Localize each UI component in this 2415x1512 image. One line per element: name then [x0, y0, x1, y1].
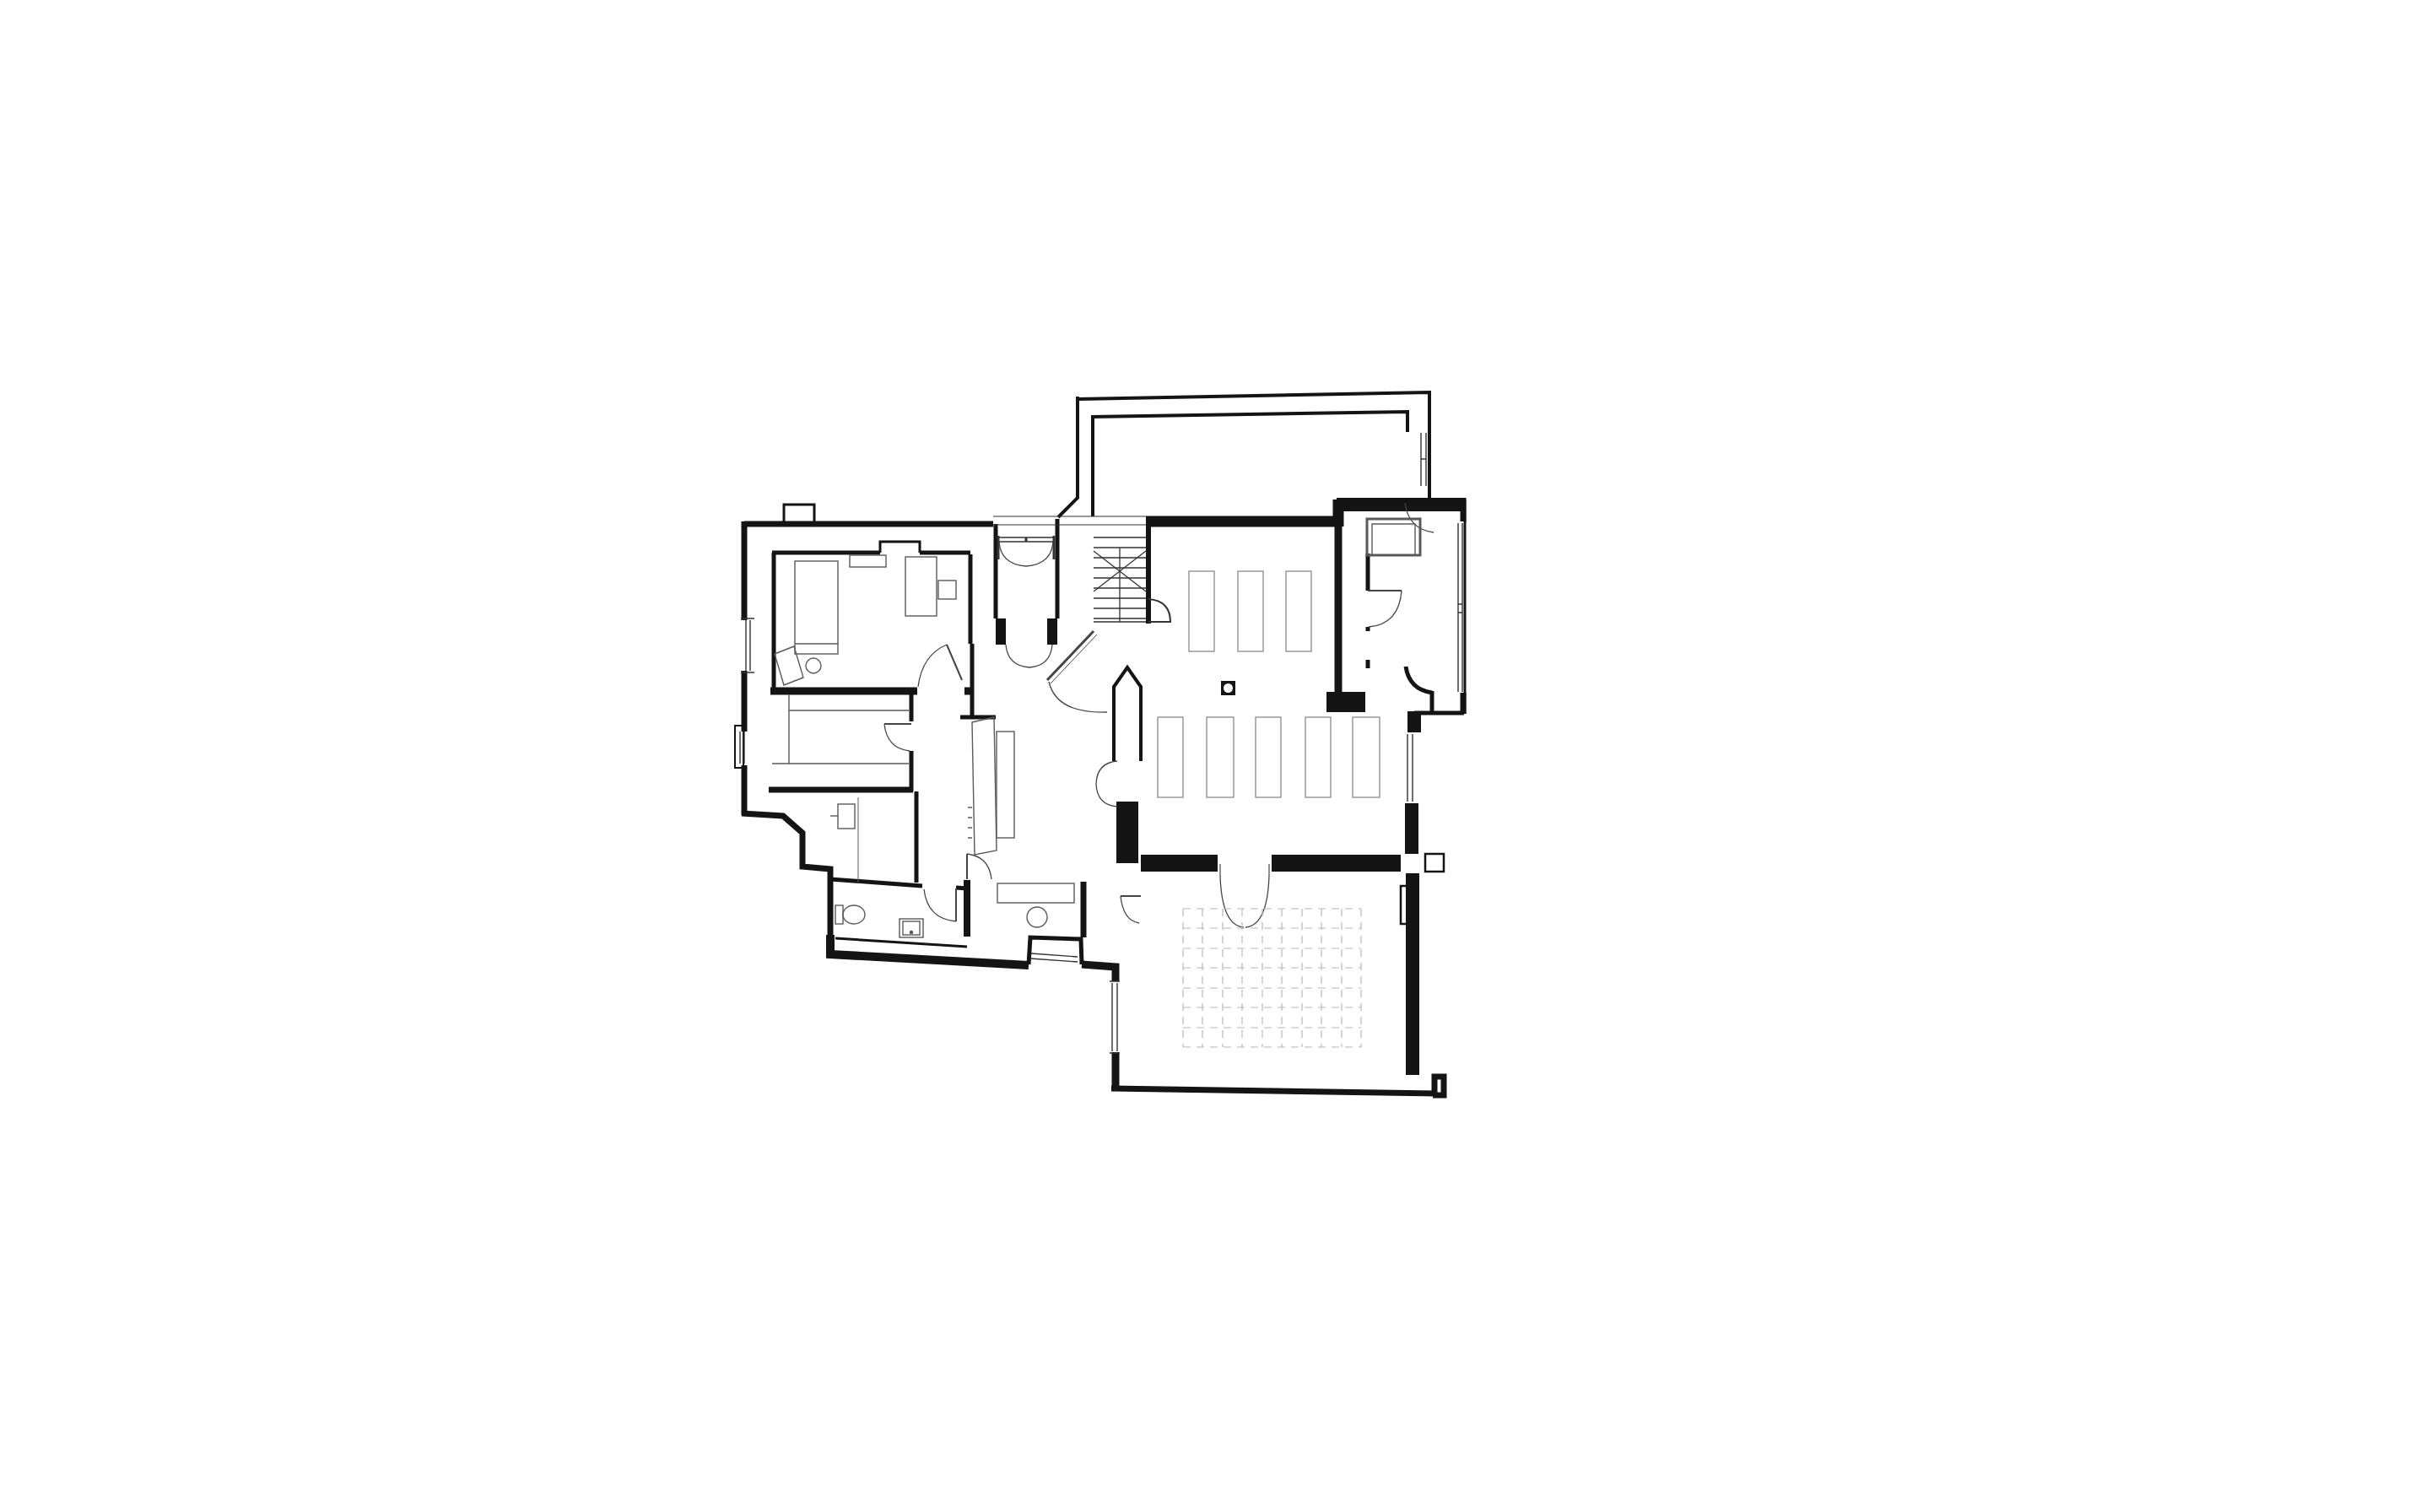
lower-desk-1 — [1158, 717, 1183, 797]
walls-exterior — [735, 392, 1465, 1095]
desk-chair — [938, 580, 956, 599]
bedroom-door-arc — [918, 645, 947, 687]
east-pilaster — [1425, 854, 1444, 872]
window-hall-west — [1110, 981, 1120, 1053]
wc-door-arc — [967, 854, 991, 879]
wc-counter — [997, 883, 1074, 903]
annex-door-arc — [1369, 591, 1402, 627]
rug — [775, 646, 803, 685]
terrace-outer-wall — [1078, 392, 1429, 499]
french-door-arcs — [999, 542, 1053, 566]
bath-door-arc — [924, 889, 956, 921]
vestibule-walls — [970, 519, 1057, 715]
hall-double-door-arcs — [1220, 876, 1269, 927]
coat-hooks — [968, 807, 972, 838]
bed — [795, 561, 838, 654]
wc-sink — [1027, 907, 1047, 927]
lower-desk-4 — [1305, 717, 1331, 797]
toilet-tank — [835, 905, 843, 924]
shower-drain — [910, 931, 912, 933]
stool — [806, 658, 821, 673]
southwest-corner — [742, 813, 830, 937]
window-classroom-east — [1407, 734, 1413, 802]
toilet-bowl — [843, 905, 865, 924]
diagonal-door-arc — [1049, 682, 1107, 712]
hall-double-door-jambs — [1220, 864, 1269, 876]
classroom-north-wall — [1146, 499, 1342, 526]
bedroom2-door-arc — [884, 724, 910, 751]
window-annex-east — [1458, 523, 1462, 692]
bath-north-wall — [830, 879, 967, 888]
floor-plan-canvas — [0, 0, 2415, 1512]
bed-platform-lines — [772, 694, 909, 764]
terrace-west-wall — [1058, 397, 1093, 517]
vestibule-jambs — [1001, 618, 1052, 645]
canopy-edge-lines — [993, 516, 1146, 525]
desks — [1158, 571, 1380, 797]
column — [1221, 681, 1235, 695]
wardrobe-back — [997, 732, 1014, 838]
vestibule-frame-posts — [998, 536, 1054, 559]
hall-west-wall — [1082, 964, 1116, 1090]
annex-closet-inner — [1372, 524, 1415, 555]
terrace-inner-wall — [1091, 412, 1407, 432]
cabinet — [838, 804, 855, 829]
lower-desk-3 — [1256, 717, 1281, 797]
hall-left-door-arc — [1121, 896, 1139, 923]
desk — [905, 557, 937, 616]
grid-vertical-lines — [1183, 909, 1361, 1047]
upper-desk-3 — [1286, 571, 1311, 651]
window-west-upper — [741, 618, 754, 672]
grid-horizontal-lines — [1183, 909, 1361, 1047]
bedroom-north-notch — [880, 542, 920, 553]
upper-desk-1 — [1189, 571, 1214, 651]
vestibule-double-door-arcs — [1006, 645, 1052, 667]
stub-double-door-arcs — [1096, 761, 1117, 807]
window-terrace-east — [1421, 433, 1426, 486]
wardrobe — [972, 717, 997, 855]
upper-desk-2 — [1238, 571, 1263, 651]
lower-desk-5 — [1353, 717, 1380, 797]
ceiling-grid — [1183, 909, 1361, 1047]
bedroom-door-leaf — [947, 645, 962, 680]
stub-pointed-wall — [1114, 667, 1141, 761]
annex-curved-wall — [1406, 667, 1432, 693]
west-window-jog — [735, 726, 743, 768]
diagonal-door-leaf2 — [1051, 634, 1097, 683]
column-shaft — [1224, 683, 1233, 693]
south-wall-inner — [835, 938, 967, 947]
stairs — [1094, 537, 1170, 622]
floor-plan-page — [0, 0, 2415, 1512]
furniture — [772, 519, 1420, 937]
lower-desk-2 — [1207, 717, 1234, 797]
hall-bottom-wall — [1111, 1077, 1444, 1095]
entry-door-leaf — [1030, 953, 1078, 962]
wall-shelf — [850, 555, 886, 567]
annex-south-wall — [1414, 691, 1464, 713]
stair-bullnose — [1148, 599, 1170, 622]
